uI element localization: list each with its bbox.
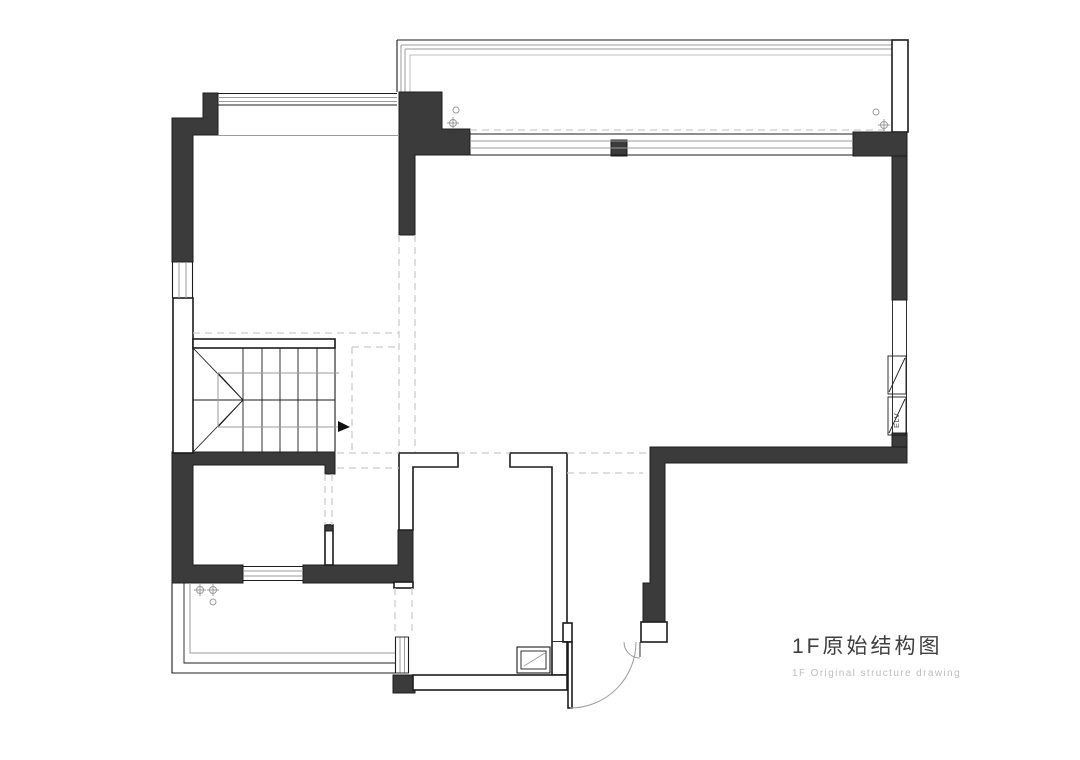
drain-symbol-top-right <box>873 109 890 131</box>
drawing-subtitle: 1F Original structure drawing <box>792 668 1052 679</box>
wall-bath-top-left <box>399 453 458 530</box>
stair-direction-arrow <box>338 421 350 432</box>
floor-plan-sheet: ELV <box>0 0 1080 760</box>
window-terrace-side <box>395 637 409 673</box>
top-balcony-outline <box>397 40 908 132</box>
balcony-end-column <box>892 40 908 132</box>
wall-stair-bottom-and-left-lower <box>172 452 335 583</box>
light-walls <box>173 298 567 690</box>
structural-walls <box>172 92 907 693</box>
window-top-main <box>470 134 853 155</box>
wall-lower-room-bottom-right <box>303 530 413 583</box>
wall-right-upper <box>892 156 907 300</box>
window-left-wall <box>173 262 193 298</box>
shaft-label: ELV <box>892 413 901 428</box>
drawing-title: 1F原始结构图 <box>792 630 1052 660</box>
shaft-opening: ELV <box>888 300 907 435</box>
wall-bottom-right-and-entry <box>643 447 907 622</box>
drain-symbol-lower-left <box>194 584 219 605</box>
stair-walkline <box>218 373 350 432</box>
door-swing-arc <box>570 642 636 708</box>
entry-door <box>552 622 667 708</box>
window-top-left <box>218 94 397 106</box>
door-jamb-left <box>563 623 572 642</box>
wall-top-left-corner <box>172 93 218 262</box>
wall-bath-bottom <box>413 675 567 690</box>
stair-treads <box>193 348 335 452</box>
wall-joint-box <box>394 582 413 588</box>
wall-left-mid <box>173 298 193 453</box>
drain-symbol-top-center <box>447 107 459 129</box>
door-small-leaf-arc <box>624 642 640 658</box>
windows <box>173 94 854 674</box>
lower-terrace-outline <box>172 583 395 673</box>
wall-partition-stub <box>325 525 333 565</box>
wall-stair-top <box>193 339 335 348</box>
door-jamb-right <box>641 622 667 642</box>
door-leaf <box>568 642 572 708</box>
window-lower-room <box>243 567 303 581</box>
wall-top-center-column <box>399 92 470 235</box>
dashed-beam-lines <box>193 130 885 636</box>
wall-top-right-block <box>853 132 907 156</box>
staircase <box>193 339 350 452</box>
title-block: 1F原始结构图 1F Original structure drawing <box>792 630 1052 679</box>
bathroom-fixture <box>517 647 550 673</box>
wall-terrace-corner-block <box>393 675 415 693</box>
